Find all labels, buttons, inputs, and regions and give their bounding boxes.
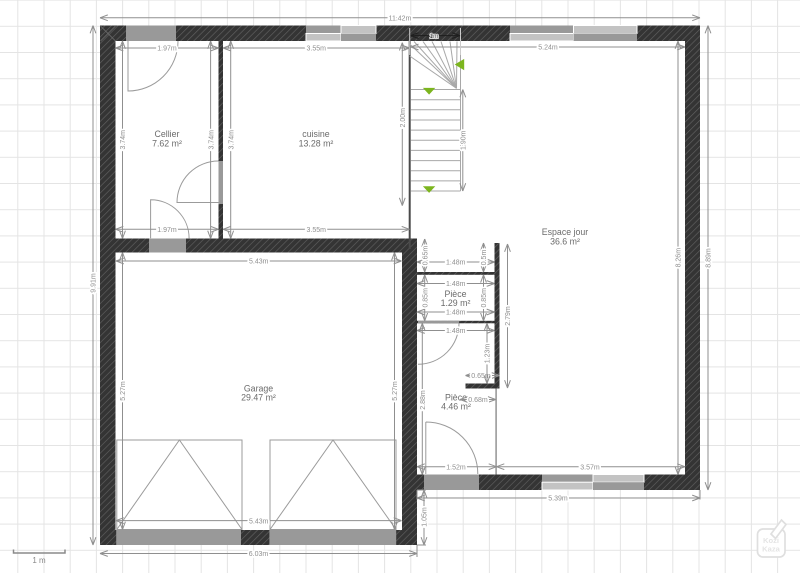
svg-text:5.43m: 5.43m (249, 259, 269, 266)
svg-text:13.28 m²: 13.28 m² (299, 139, 334, 149)
svg-text:5.39m: 5.39m (548, 496, 568, 503)
svg-text:3.74m: 3.74m (228, 130, 235, 150)
svg-text:0.85m: 0.85m (481, 288, 488, 308)
svg-text:Kaza: Kaza (762, 545, 781, 554)
svg-text:1.48m: 1.48m (446, 260, 466, 267)
svg-text:29.47 m²: 29.47 m² (241, 393, 276, 403)
svg-text:0.65m: 0.65m (422, 246, 429, 266)
svg-text:3.55m: 3.55m (307, 46, 327, 53)
svg-text:5.27m: 5.27m (120, 381, 127, 401)
svg-text:2.79m: 2.79m (505, 306, 512, 326)
svg-text:11.42m: 11.42m (389, 16, 412, 23)
svg-text:0.5m: 0.5m (481, 250, 488, 266)
svg-text:1.90m: 1.90m (461, 130, 468, 150)
svg-text:1 m: 1 m (32, 556, 46, 565)
svg-text:1.05m: 1.05m (422, 507, 429, 527)
svg-text:4.46 m²: 4.46 m² (441, 402, 471, 412)
svg-text:1.48m: 1.48m (446, 281, 466, 288)
svg-text:36.6 m²: 36.6 m² (550, 236, 580, 246)
svg-text:1.97m: 1.97m (157, 227, 177, 234)
svg-text:3.57m: 3.57m (580, 464, 600, 471)
svg-text:0.68m: 0.68m (468, 397, 488, 404)
svg-text:1.52m: 1.52m (446, 464, 466, 471)
svg-text:1.23m: 1.23m (485, 344, 492, 364)
svg-text:7.62 m²: 7.62 m² (152, 139, 182, 149)
svg-text:8.89m: 8.89m (706, 248, 713, 268)
svg-text:3.74m: 3.74m (120, 130, 127, 150)
svg-text:2.00m: 2.00m (400, 108, 407, 128)
svg-text:1m: 1m (429, 33, 438, 40)
svg-text:3.55m: 3.55m (307, 227, 327, 234)
svg-text:1.97m: 1.97m (157, 46, 177, 53)
svg-text:9.91m: 9.91m (91, 273, 98, 293)
svg-text:1.29 m²: 1.29 m² (441, 298, 471, 308)
svg-text:6.03m: 6.03m (249, 551, 269, 558)
svg-text:5.24m: 5.24m (538, 45, 558, 52)
svg-text:5.43m: 5.43m (249, 518, 269, 525)
svg-text:3.74m: 3.74m (208, 130, 215, 150)
svg-text:0.65m: 0.65m (471, 373, 491, 380)
svg-text:2.88m: 2.88m (420, 390, 427, 410)
svg-text:8.26m: 8.26m (676, 248, 683, 268)
svg-text:0.85m: 0.85m (422, 288, 429, 308)
svg-text:1.48m: 1.48m (446, 310, 466, 317)
svg-text:5.27m: 5.27m (392, 381, 399, 401)
svg-text:1.48m: 1.48m (446, 328, 466, 335)
